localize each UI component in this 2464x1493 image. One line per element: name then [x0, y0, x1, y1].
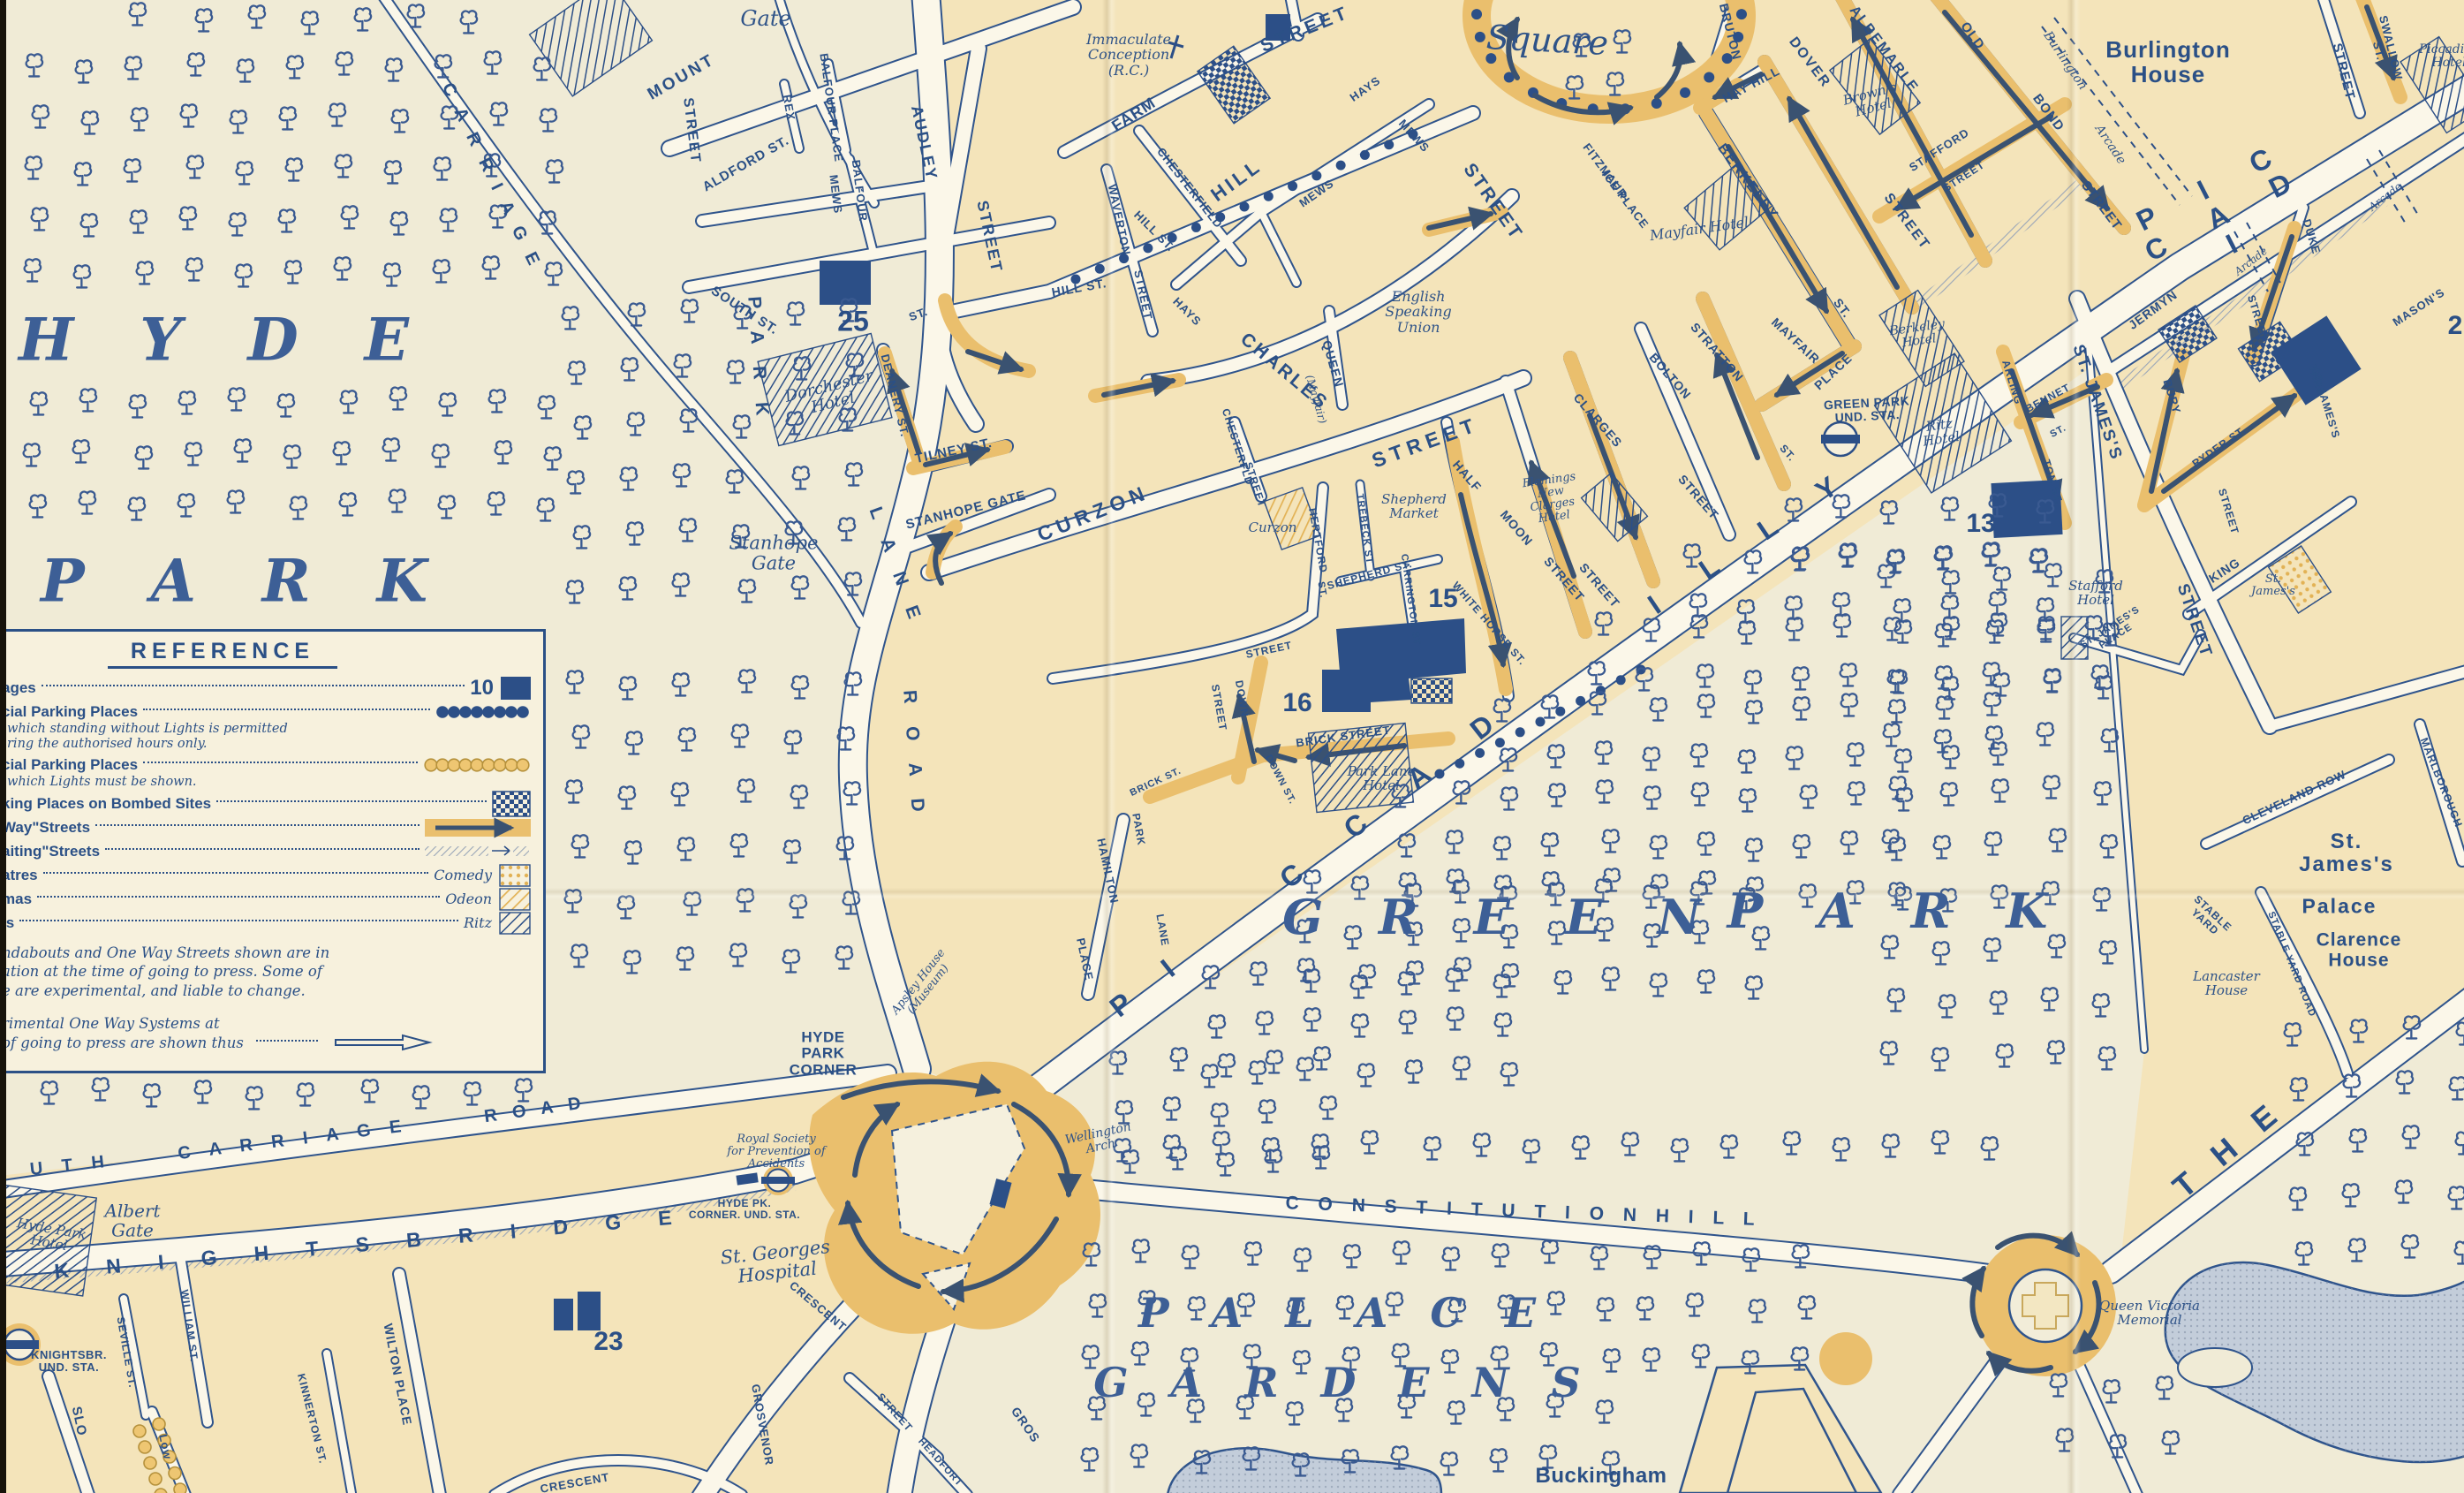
hotel-swatch	[499, 912, 531, 935]
theatre-swatch	[499, 864, 531, 887]
legend-rows: ages10cial Parking Placeswhich standing …	[2, 676, 531, 935]
legend-item-row: aiting"Streets	[2, 839, 531, 863]
no-waiting-street-icon	[425, 842, 531, 861]
legend-item-row: Way"Streets	[2, 815, 531, 839]
garage-swatch	[501, 677, 531, 700]
palace-forecourt-junction	[1819, 1332, 1872, 1385]
legend-item-subnote: which Lights must be shown.	[7, 775, 531, 790]
legend-leader	[143, 708, 430, 710]
legend-item-label: aiting"Streets	[2, 843, 100, 860]
legend-leader	[19, 919, 458, 921]
legend-item-row: atresComedy	[2, 863, 531, 887]
legend-leader	[95, 823, 419, 826]
vintage-london-parking-map: GateC A R R I A G EH Y D EP A R KMOUNTST…	[0, 0, 2464, 1493]
legend-item-label: mas	[2, 890, 32, 908]
legend-note-line: rimental One Way Systems at	[2, 1014, 531, 1033]
legend-leader	[216, 800, 487, 802]
official-parking-dots-icon	[435, 704, 531, 720]
bombed-site-swatch	[492, 791, 531, 817]
legend-note: ndabouts and One Way Streets shown are i…	[2, 944, 531, 1000]
legend-item-label: atres	[2, 867, 38, 884]
legend-note-line: ndabouts and One Way Streets shown are i…	[2, 944, 531, 962]
legend-item-subnote: ring the authorised hours only.	[7, 737, 531, 752]
legend-title: REFERENCE	[108, 639, 337, 669]
legend-leader	[37, 895, 440, 898]
legend-note-line: of going to press are shown thus	[2, 1034, 244, 1052]
legend-item-row: cial Parking Places	[2, 700, 531, 724]
cinema-swatch	[499, 888, 531, 911]
legend-item-label: Way"Streets	[2, 819, 90, 837]
legend-item-row: lsRitz	[2, 911, 531, 935]
legend-item-label: ages	[2, 679, 36, 697]
legend-leader	[143, 761, 418, 763]
legend-venue-name: Ritz	[464, 914, 492, 931]
lighted-parking-circles-icon	[423, 756, 531, 774]
legend-item-subnote: which standing without Lights is permitt…	[7, 722, 531, 737]
legend-venue-name: Comedy	[434, 867, 492, 883]
legend-note-line: ation at the time of going to press. Som…	[2, 962, 531, 981]
legend-note-line: e are experimental, and liable to change…	[2, 981, 531, 1000]
queen-victoria-memorial-roundabout	[1975, 1235, 2116, 1376]
legend-item-label: cial Parking Places	[2, 756, 138, 774]
fold-crease	[1102, 0, 1116, 1493]
legend-leader	[42, 684, 465, 686]
legend-item-row: king Places on Bombed Sites	[2, 792, 531, 815]
legend-note-experimental: rimental One Way Systems at of going to …	[2, 1014, 531, 1052]
legend-item-label: king Places on Bombed Sites	[2, 795, 211, 813]
experimental-one-way-arrow-icon	[330, 1034, 436, 1051]
legend-garage-number: 10	[470, 676, 494, 701]
legend-item-row: masOdeon	[2, 887, 531, 911]
scan-edge	[0, 0, 6, 1493]
fold-crease	[2067, 0, 2081, 1493]
legend-item-label: cial Parking Places	[2, 703, 138, 721]
legend-item-row: ages10	[2, 676, 531, 700]
one-way-street-icon	[425, 817, 531, 838]
legend-leader	[43, 871, 429, 874]
legend-item-row: cial Parking Places	[2, 753, 531, 777]
legend-venue-name: Odeon	[445, 890, 492, 907]
legend-panel: REFERENCE ages10cial Parking Placeswhich…	[0, 629, 546, 1073]
legend-leader	[105, 847, 419, 850]
